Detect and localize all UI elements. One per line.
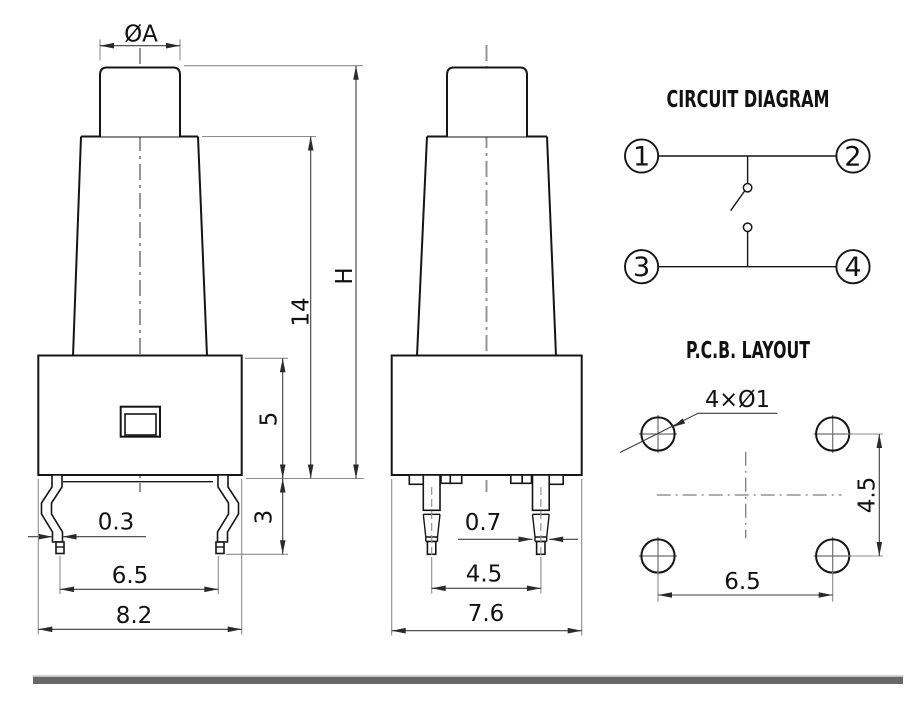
side-right-pin	[533, 475, 550, 557]
pcb-horizontal-label: 6.5	[724, 569, 761, 595]
holes-label: 4×Ø1	[705, 387, 770, 413]
circuit-diagram: CIRCUIT DIAGRAM 1 2 3 4	[625, 87, 870, 283]
side-tab	[441, 475, 450, 483]
dim-pin-spacing-side: 4.5	[432, 557, 541, 594]
body-depth-label: 7.6	[468, 601, 505, 627]
front-left-pin	[42, 475, 63, 542]
front-right-pin-tip	[216, 542, 224, 554]
front-view: ØA H 14 5 3 0.3	[28, 22, 364, 635]
terminal-4-label: 4	[844, 252, 861, 283]
pin-width-front-label: 0.3	[98, 510, 135, 536]
leader-arrowhead	[673, 418, 686, 427]
side-tab	[409, 475, 423, 484]
dim-pcb-vertical: 4.5	[846, 434, 883, 556]
dim-pcb-horizontal: 6.5	[658, 569, 833, 602]
dim-pin-spacing-front: 6.5	[60, 556, 218, 594]
side-left-pin	[423, 475, 440, 557]
front-window-inner	[125, 414, 156, 435]
body-height-label: 5	[257, 412, 283, 427]
pin-length-label: 3	[252, 510, 278, 525]
pcb-vertical-label: 4.5	[855, 477, 881, 514]
pcb-layout: P.C.B. LAYOUT 4×Ø1 4.5	[620, 338, 883, 602]
cap-diameter-label: ØA	[124, 22, 158, 48]
dim-body-depth: 7.6	[392, 479, 582, 636]
front-cap	[100, 68, 180, 137]
side-view: 0.7 4.5 7.6	[392, 45, 582, 636]
footer-divider-bar	[33, 675, 903, 684]
side-tab	[511, 475, 522, 483]
terminal-1-label: 1	[633, 142, 650, 173]
front-right-pin	[218, 475, 239, 542]
pcb-layout-title: P.C.B. LAYOUT	[686, 338, 810, 364]
terminal-2-label: 2	[844, 142, 861, 173]
circuit-diagram-title: CIRCUIT DIAGRAM	[667, 87, 830, 113]
side-tab	[549, 475, 563, 484]
dim-pin-width-side: 0.7	[458, 510, 578, 539]
pin-width-side-label: 0.7	[465, 510, 502, 536]
side-cap	[447, 68, 527, 137]
dim-body-width: 8.2	[38, 479, 241, 635]
front-left-pin-tip	[56, 542, 64, 554]
switch-symbol	[731, 156, 752, 267]
technical-drawing-canvas: ØA H 14 5 3 0.3	[0, 0, 917, 713]
terminal-3-label: 3	[633, 252, 650, 283]
pin-spacing-front-label: 6.5	[112, 563, 149, 589]
technical-drawing-page: ØA H 14 5 3 0.3	[0, 0, 917, 713]
cone-height-label: 14	[289, 297, 315, 326]
pin-spacing-side-label: 4.5	[466, 562, 503, 588]
side-body	[392, 356, 582, 476]
side-tab	[450, 475, 461, 483]
body-width-label: 8.2	[116, 603, 153, 629]
dim-body-height: 5	[245, 358, 288, 478]
side-tab	[522, 475, 531, 483]
total-height-label: H	[332, 267, 358, 284]
